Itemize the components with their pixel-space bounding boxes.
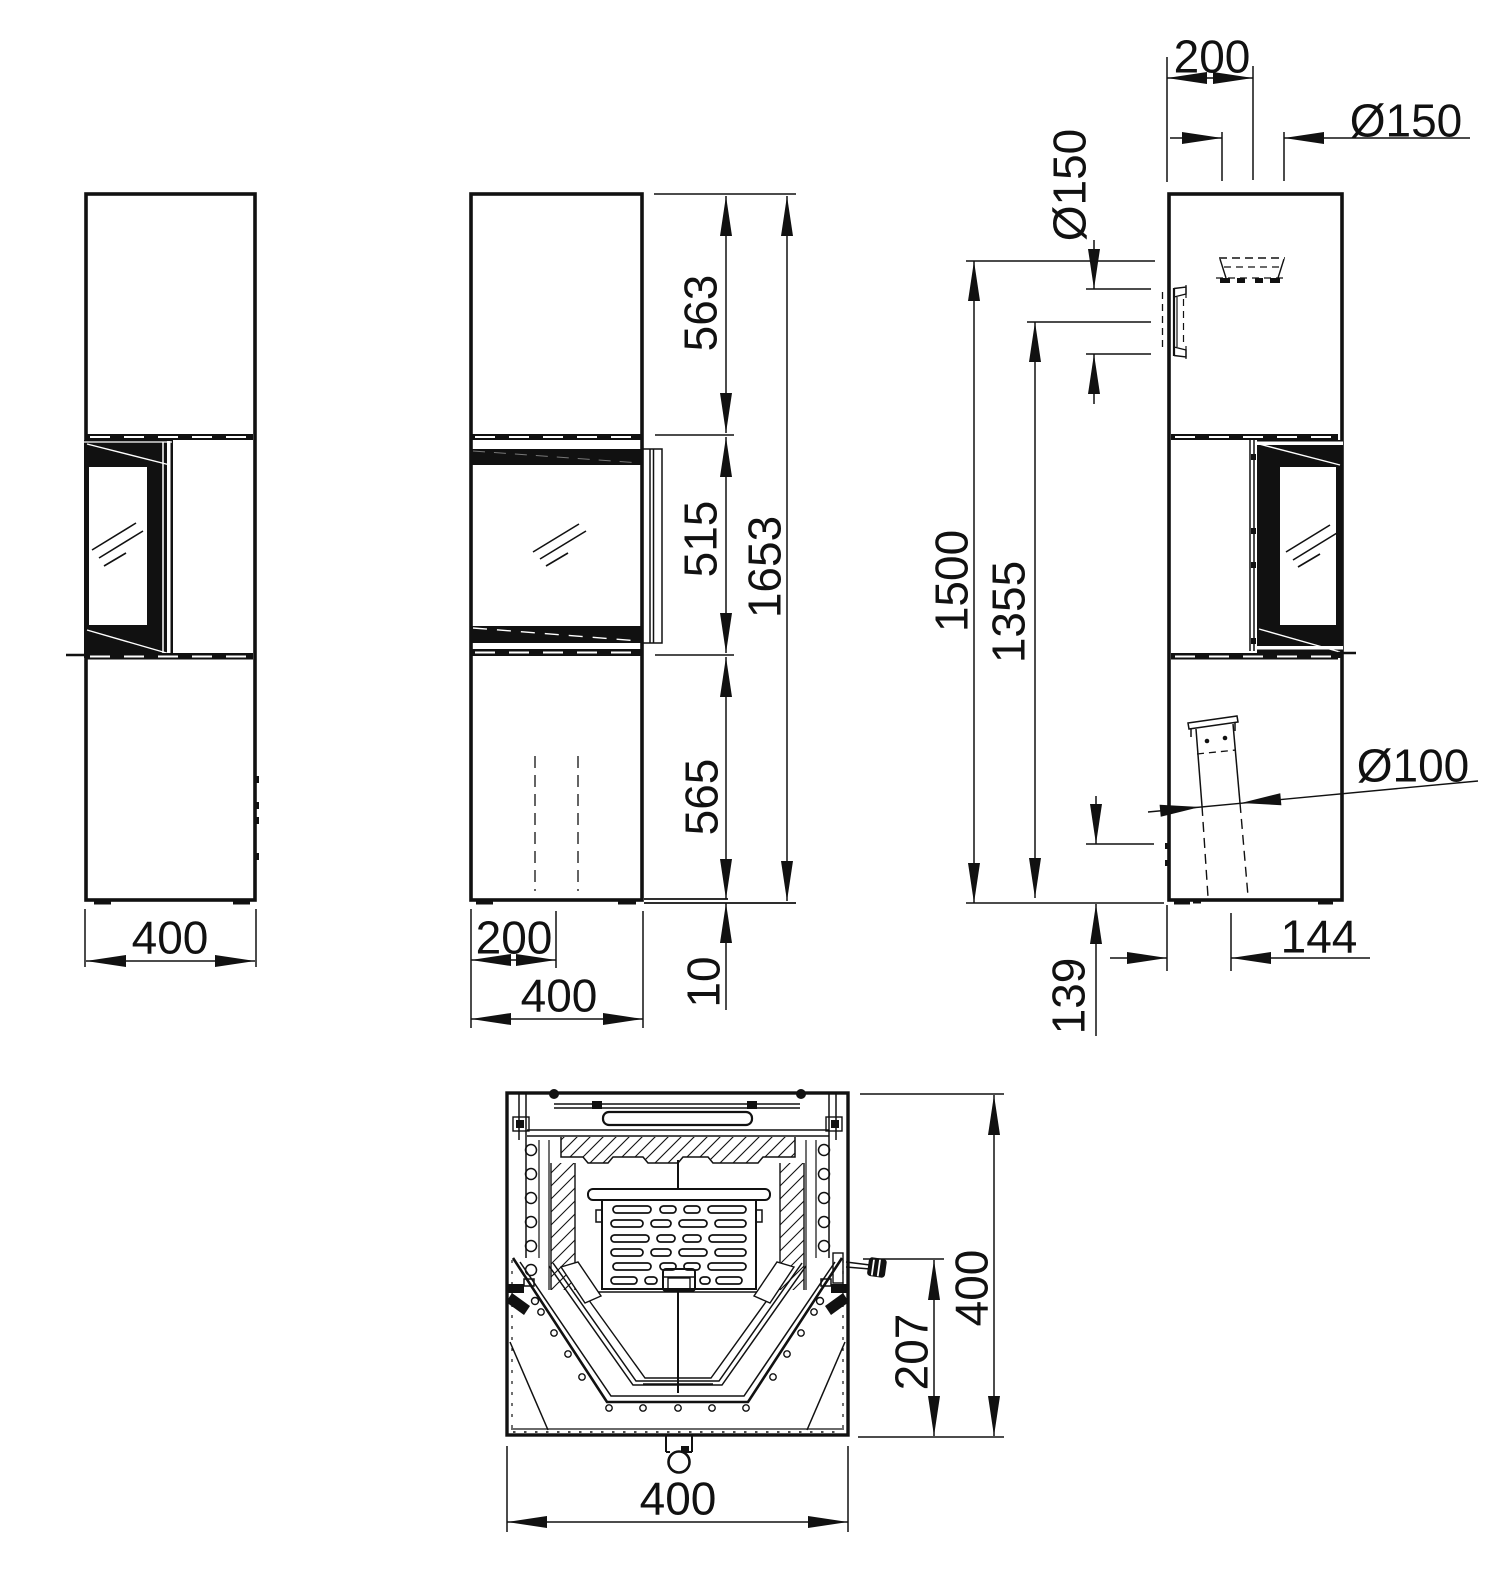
svg-text:144: 144 xyxy=(1281,911,1358,963)
svg-text:563: 563 xyxy=(675,275,727,352)
svg-text:139: 139 xyxy=(1043,958,1095,1035)
svg-text:1355: 1355 xyxy=(983,561,1035,663)
svg-text:400: 400 xyxy=(132,912,209,964)
svg-text:400: 400 xyxy=(640,1473,717,1525)
svg-text:200: 200 xyxy=(1174,31,1251,83)
svg-text:207: 207 xyxy=(886,1314,938,1391)
svg-text:400: 400 xyxy=(946,1250,998,1327)
svg-text:565: 565 xyxy=(676,759,728,836)
svg-text:Ø150: Ø150 xyxy=(1350,95,1463,147)
svg-text:1653: 1653 xyxy=(739,516,791,618)
svg-text:Ø100: Ø100 xyxy=(1357,740,1470,792)
svg-text:10: 10 xyxy=(678,956,730,1007)
svg-text:Ø150: Ø150 xyxy=(1044,129,1096,242)
svg-text:200: 200 xyxy=(476,912,553,964)
svg-text:400: 400 xyxy=(521,970,598,1022)
svg-text:515: 515 xyxy=(675,501,727,578)
svg-text:1500: 1500 xyxy=(926,530,978,632)
